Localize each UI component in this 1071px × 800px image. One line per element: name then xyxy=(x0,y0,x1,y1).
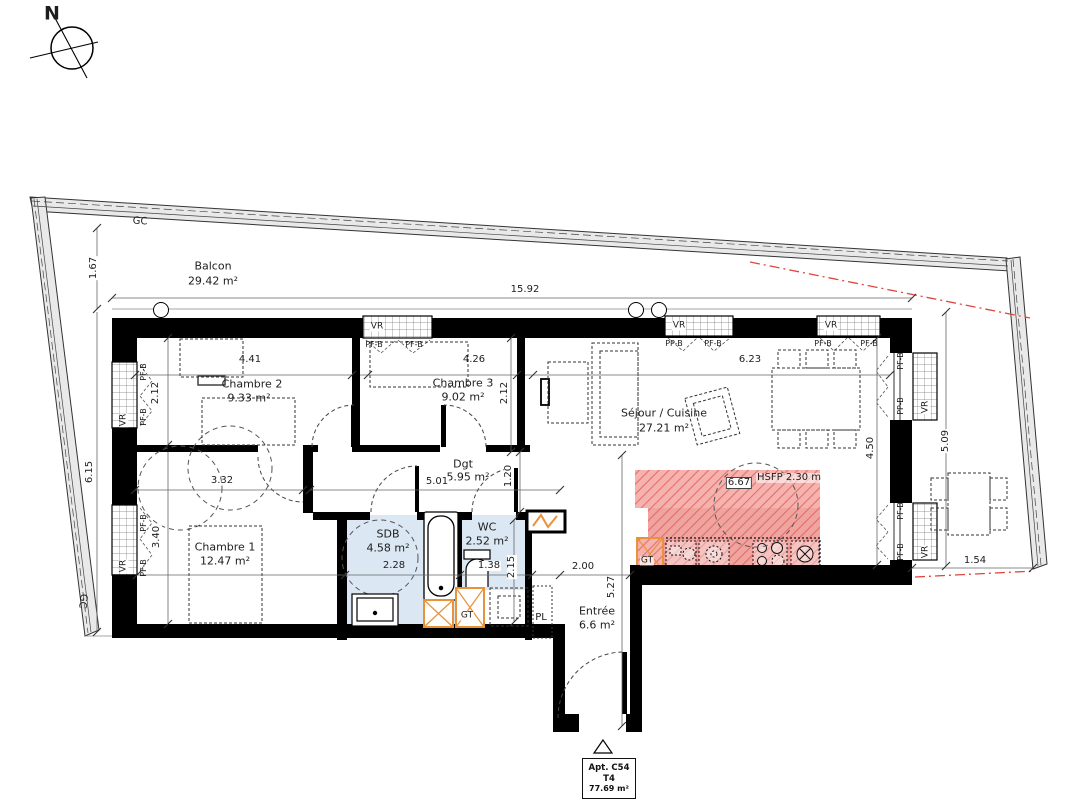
extractor-icon xyxy=(791,541,819,567)
chair xyxy=(990,478,1007,500)
floor-plan-drawing xyxy=(0,0,1071,800)
electrical-panel-icon xyxy=(527,511,565,532)
washbasin-icon xyxy=(352,594,398,626)
vr-box xyxy=(112,362,137,428)
apartment-id: Apt. C54 xyxy=(589,764,630,773)
sofa xyxy=(592,343,638,445)
chair xyxy=(834,430,856,448)
title-block: Apt. C54 T4 77.69 m² xyxy=(582,758,636,799)
chair xyxy=(990,508,1007,530)
vr-box xyxy=(363,316,432,338)
vr-box xyxy=(817,316,880,336)
chair xyxy=(778,350,800,368)
vr-box xyxy=(913,503,937,560)
sofa-inner xyxy=(600,351,638,437)
balcony-post xyxy=(154,303,169,318)
bathtub-icon xyxy=(424,512,458,600)
door-arc xyxy=(258,457,303,502)
window-gap xyxy=(890,503,912,560)
balcony-post xyxy=(629,303,644,318)
door-leaf xyxy=(622,652,627,714)
chair xyxy=(834,350,856,368)
door-leaf xyxy=(415,466,419,512)
chair xyxy=(806,350,828,368)
door-arc xyxy=(371,466,417,512)
door-leaf xyxy=(441,405,446,447)
chair xyxy=(931,478,948,500)
vr-box xyxy=(913,353,937,420)
chair xyxy=(778,430,800,448)
door-arc xyxy=(312,405,354,447)
vr-box xyxy=(112,505,137,575)
compass-icon xyxy=(30,18,98,78)
kitchen-zone xyxy=(635,470,820,570)
ch1-bed xyxy=(189,526,262,623)
toilet-icon xyxy=(464,550,490,587)
unit-type: T4 xyxy=(603,775,615,784)
door-leaf xyxy=(351,405,356,447)
door-arc xyxy=(558,652,624,718)
vr-box xyxy=(665,316,733,336)
floor-plan: NGCGCBalcon29.42 m²1.6715.926.15VRVRVRVR… xyxy=(0,0,1071,800)
door-arc xyxy=(444,405,486,447)
washing-machine-drum xyxy=(498,596,520,618)
window-gap xyxy=(890,353,912,420)
sink-icon xyxy=(666,541,696,567)
entry-marker-triangle xyxy=(594,740,612,753)
washing-machine xyxy=(490,588,528,626)
sideboard xyxy=(548,362,588,423)
ch2-desk xyxy=(180,339,243,377)
ch2-bed xyxy=(202,398,295,445)
washer-icon xyxy=(699,541,729,567)
balcony-post xyxy=(652,303,667,318)
armchair xyxy=(685,387,740,445)
chair xyxy=(806,430,828,448)
total-area: 77.69 m² xyxy=(589,785,629,793)
dining-table xyxy=(772,368,860,430)
balcony-table xyxy=(948,473,990,535)
cooktop-icon xyxy=(753,541,787,567)
